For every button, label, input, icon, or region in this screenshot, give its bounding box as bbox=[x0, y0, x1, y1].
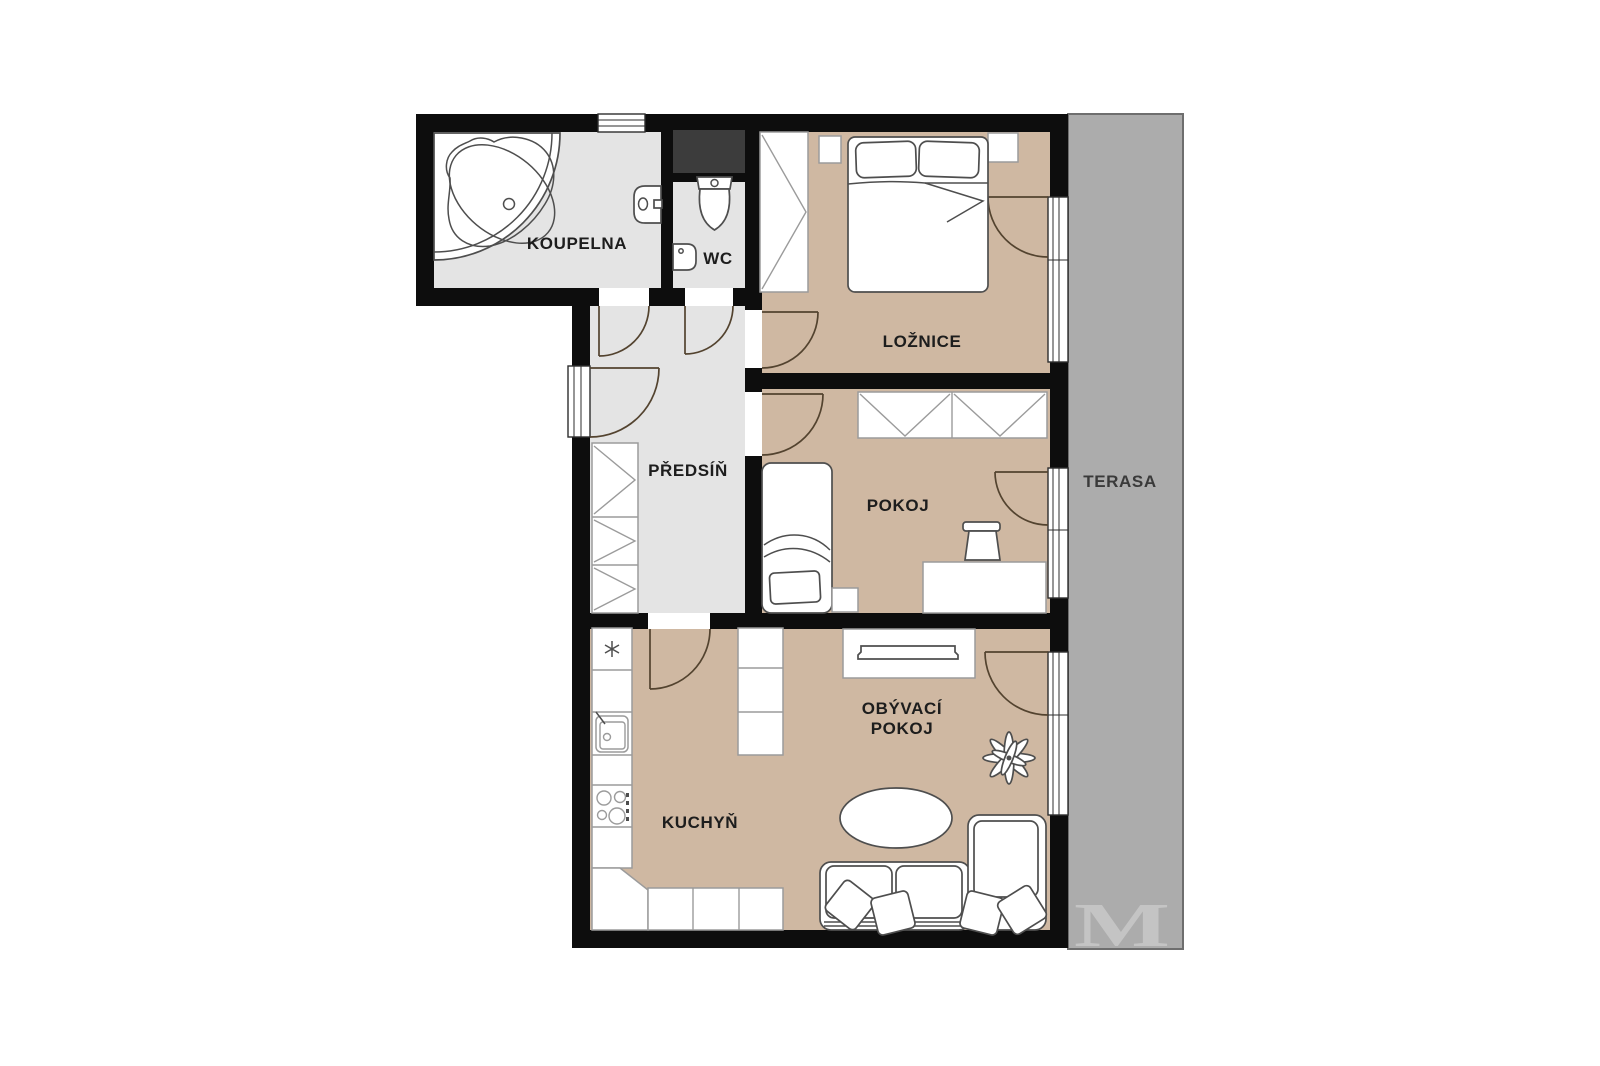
bedroom-balcony-window bbox=[1048, 197, 1068, 362]
living-room-label-line2: POKOJ bbox=[871, 719, 934, 738]
hallway-furniture bbox=[592, 443, 638, 613]
wall-mid-horizontal bbox=[572, 613, 1050, 629]
kids-room-door-opening bbox=[745, 392, 762, 456]
sofa-pillow bbox=[959, 890, 1005, 936]
kitchen-counter-bottom bbox=[648, 888, 783, 930]
nightstand-right bbox=[988, 133, 1018, 162]
kitchen-tall-cabinets bbox=[738, 628, 783, 755]
wall-bedroom-kidsroom bbox=[745, 373, 1050, 389]
kitchen-door-opening bbox=[648, 613, 710, 629]
bedroom-door-opening bbox=[745, 310, 762, 368]
bathroom-sink-icon bbox=[634, 186, 662, 223]
plant-icon bbox=[983, 732, 1035, 784]
terrace-label: TERASA bbox=[1083, 472, 1157, 491]
living-room-label-line1: OBÝVACÍ bbox=[862, 699, 943, 718]
wc-door-opening bbox=[685, 288, 733, 306]
hallway-wardrobe-icon bbox=[592, 443, 638, 613]
kids-wardrobe-icon bbox=[858, 392, 1047, 438]
kids-room-label: POKOJ bbox=[867, 496, 930, 515]
terrace-floor bbox=[1068, 114, 1183, 949]
watermark-logo: M bbox=[1074, 892, 1170, 960]
hallway-label: PŘEDSÍŇ bbox=[648, 461, 728, 480]
bedroom-wardrobe-icon bbox=[760, 132, 808, 292]
bedroom-label: LOŽNICE bbox=[883, 332, 962, 351]
tv-stand-icon bbox=[843, 629, 975, 678]
bathroom-label: KOUPELNA bbox=[527, 234, 627, 253]
living-room-balcony-window bbox=[1048, 652, 1068, 815]
bathroom-window bbox=[598, 114, 645, 132]
bathroom-door-opening bbox=[599, 288, 649, 306]
wall-top bbox=[416, 114, 1068, 132]
coffee-table bbox=[840, 788, 952, 848]
entrance-door-frame bbox=[568, 366, 590, 437]
kids-room-balcony-window bbox=[1048, 468, 1068, 598]
shaft bbox=[673, 130, 745, 173]
wc-label: WC bbox=[703, 249, 733, 268]
nightstand-left bbox=[819, 136, 841, 163]
desk bbox=[923, 562, 1046, 613]
kitchen-label: KUCHYŇ bbox=[662, 813, 738, 832]
floor-plan: KOUPELNA WC LOŽNICE PŘEDSÍŇ POKOJ KUCHYŇ… bbox=[0, 0, 1600, 1066]
wall-bathroom-left bbox=[416, 114, 434, 306]
bedroom-furniture bbox=[760, 132, 1018, 292]
sofa-pillow bbox=[870, 890, 916, 936]
kids-nightstand bbox=[832, 588, 858, 612]
desk-chair-icon bbox=[963, 522, 1000, 560]
double-bed-icon bbox=[848, 137, 988, 292]
wc-sink-icon bbox=[673, 244, 696, 270]
floor-plan-page: KOUPELNA WC LOŽNICE PŘEDSÍŇ POKOJ KUCHYŇ… bbox=[0, 0, 1600, 1066]
kitchen-sink-icon bbox=[596, 712, 628, 752]
wall-bath-wc-divider bbox=[661, 130, 673, 288]
single-bed-icon bbox=[762, 463, 832, 613]
